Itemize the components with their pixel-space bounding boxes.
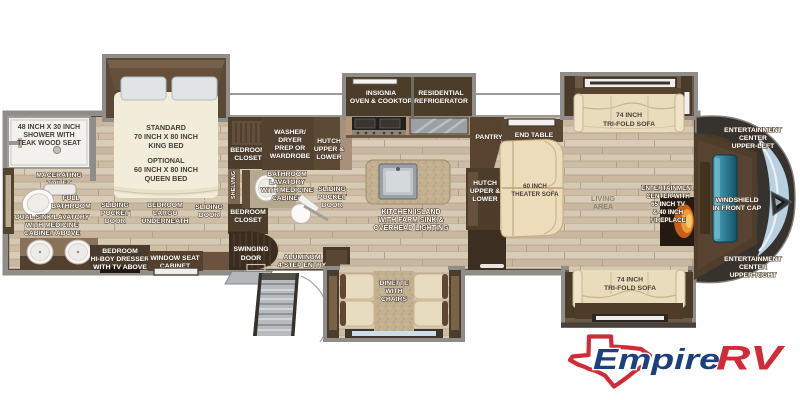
svg-text:WASHER/: WASHER/ (274, 129, 306, 136)
svg-text:UPPER &: UPPER & (314, 146, 344, 153)
svg-text:BATHROOM: BATHROOM (267, 171, 307, 178)
svg-text:HUTCH: HUTCH (317, 138, 341, 145)
svg-text:RV: RV (716, 340, 787, 378)
svg-text:UPPER-RIGHT: UPPER-RIGHT (730, 272, 778, 279)
svg-text:ALUMINUM: ALUMINUM (284, 254, 321, 261)
svg-text:DOOR: DOOR (241, 255, 261, 262)
svg-text:IN FRONT CAP: IN FRONT CAP (713, 205, 762, 212)
svg-text:60 INCH X 80 INCH: 60 INCH X 80 INCH (134, 165, 198, 174)
svg-text:BEDROOM: BEDROOM (230, 147, 266, 154)
svg-text:HUTCH: HUTCH (473, 180, 497, 187)
svg-text:& 40 INCH: & 40 INCH (653, 209, 684, 216)
svg-text:QUEEN BED: QUEEN BED (145, 174, 188, 183)
svg-text:SLIDING: SLIDING (101, 202, 129, 209)
svg-text:OVERHEAD LIGHTING: OVERHEAD LIGHTING (373, 225, 449, 232)
svg-text:CLOSET: CLOSET (234, 155, 262, 162)
svg-text:FULL: FULL (62, 195, 79, 202)
svg-text:FIREPLACE: FIREPLACE (650, 217, 686, 224)
svg-text:HI-BOY DRESSER: HI-BOY DRESSER (91, 256, 150, 263)
svg-text:70 INCH X 80 INCH: 70 INCH X 80 INCH (134, 132, 198, 141)
svg-text:DOOR: DOOR (199, 212, 219, 219)
svg-text:65 INCH TV: 65 INCH TV (651, 201, 686, 208)
svg-text:TRI-FOLD SOFA: TRI-FOLD SOFA (603, 121, 655, 128)
svg-text:ENTERTAINMENT: ENTERTAINMENT (641, 185, 695, 192)
svg-text:CENTER: CENTER (739, 264, 767, 271)
svg-text:SLIDING: SLIDING (195, 204, 223, 211)
svg-text:WITH: WITH (385, 288, 402, 295)
svg-text:DOOR: DOOR (105, 218, 125, 225)
svg-text:UNDERNEATH: UNDERNEATH (141, 218, 188, 225)
svg-text:INSIGNIA: INSIGNIA (366, 90, 396, 97)
svg-text:BEDROOM: BEDROOM (230, 209, 266, 216)
svg-text:DRYER: DRYER (278, 137, 302, 144)
svg-text:KING BED: KING BED (148, 141, 183, 150)
svg-text:RESIDENTIAL: RESIDENTIAL (418, 90, 463, 97)
svg-text:4-STEP ENTRY: 4-STEP ENTRY (278, 262, 327, 269)
svg-text:LOWER: LOWER (472, 196, 497, 203)
svg-text:CLOSET: CLOSET (234, 217, 262, 224)
svg-text:END TABLE: END TABLE (515, 132, 554, 139)
svg-text:BEDROOM: BEDROOM (102, 248, 138, 255)
svg-text:WITH FARM SINK &: WITH FARM SINK & (378, 217, 443, 224)
svg-text:WARDROBE: WARDROBE (270, 153, 311, 160)
svg-text:KITCHEN ISLAND: KITCHEN ISLAND (381, 209, 440, 216)
svg-text:PREP OR: PREP OR (275, 145, 306, 152)
svg-text:CENTER: CENTER (739, 135, 767, 142)
svg-text:SHOWER WITH: SHOWER WITH (23, 132, 74, 139)
svg-text:WITH MEDICINE: WITH MEDICINE (261, 187, 314, 194)
svg-text:WITH MEDICINE: WITH MEDICINE (26, 222, 79, 229)
svg-text:POCKET: POCKET (101, 210, 130, 217)
svg-text:REFRIGERATOR: REFRIGERATOR (414, 98, 468, 105)
svg-text:TRI-FOLD SOFA: TRI-FOLD SOFA (604, 285, 656, 292)
svg-text:POCKET: POCKET (318, 194, 347, 201)
svg-text:SLIDING: SLIDING (318, 186, 346, 193)
svg-text:STANDARD: STANDARD (146, 123, 186, 132)
svg-text:WINDOW SEAT: WINDOW SEAT (150, 255, 200, 262)
svg-text:SWINGING: SWINGING (233, 246, 268, 253)
svg-text:MACERATING: MACERATING (36, 172, 82, 179)
svg-text:ENTERTAINMENT: ENTERTAINMENT (724, 256, 782, 263)
svg-text:WITH TV ABOVE: WITH TV ABOVE (93, 264, 147, 271)
svg-text:48 INCH X 30 INCH: 48 INCH X 30 INCH (18, 124, 80, 131)
svg-text:BEDROOM: BEDROOM (147, 202, 183, 209)
svg-text:LAVATORY: LAVATORY (269, 179, 305, 186)
svg-text:SHELVING: SHELVING (231, 171, 237, 199)
svg-text:OVEN & COOKTOP: OVEN & COOKTOP (350, 98, 413, 105)
svg-text:LOWER: LOWER (316, 154, 341, 161)
svg-text:DINETTE: DINETTE (379, 280, 409, 287)
svg-text:TEAK WOOD SEAT: TEAK WOOD SEAT (17, 140, 81, 147)
svg-text:OPTIONAL: OPTIONAL (147, 156, 185, 165)
svg-text:CARGO: CARGO (152, 210, 177, 217)
svg-text:CHAIRS: CHAIRS (381, 296, 408, 303)
svg-text:BATHROOM: BATHROOM (51, 203, 91, 210)
svg-text:WINDSHIELD: WINDSHIELD (715, 197, 758, 204)
svg-text:DUAL SINK LAVATORY: DUAL SINK LAVATORY (15, 214, 90, 221)
svg-text:CABINET ABOVE: CABINET ABOVE (24, 230, 80, 237)
svg-text:74 INCH: 74 INCH (617, 277, 643, 284)
svg-text:74 INCH: 74 INCH (616, 112, 642, 119)
svg-text:ENTERTAINMENT: ENTERTAINMENT (724, 127, 782, 134)
svg-text:UPPER &: UPPER & (470, 188, 500, 195)
svg-text:CENTER WITH: CENTER WITH (646, 193, 690, 200)
svg-text:Empire: Empire (593, 344, 720, 376)
svg-text:PANTRY: PANTRY (475, 134, 503, 141)
svg-text:60 INCH: 60 INCH (523, 183, 547, 190)
svg-text:UPPER-LEFT: UPPER-LEFT (732, 143, 776, 150)
svg-text:AREA: AREA (593, 202, 613, 211)
svg-text:THEATER SOFA: THEATER SOFA (511, 191, 559, 198)
svg-text:DOOR: DOOR (322, 202, 342, 209)
